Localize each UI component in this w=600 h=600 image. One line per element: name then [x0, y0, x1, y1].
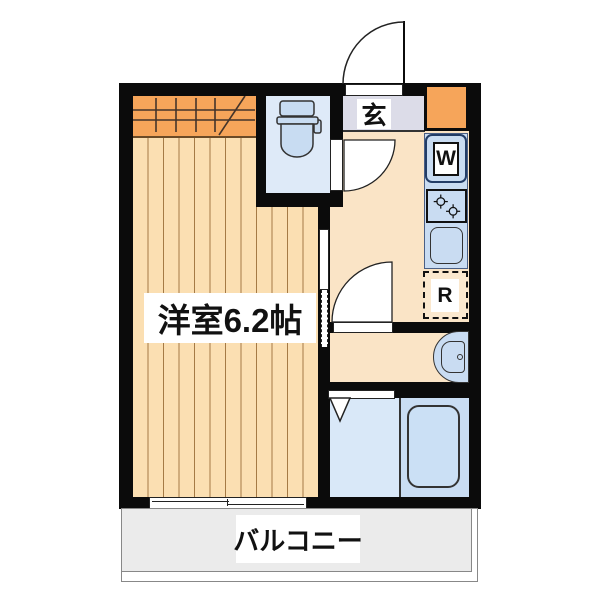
wall-left	[119, 83, 133, 509]
refrigerator-label: R	[431, 279, 459, 312]
entrance-label: 玄	[357, 99, 391, 129]
entrance-door-gap	[345, 84, 403, 96]
bathtub-icon	[407, 405, 460, 488]
wall-right	[469, 83, 481, 509]
toilet-door-arc-icon	[343, 139, 397, 193]
balcony-window-pane-right	[227, 504, 304, 505]
washbasin-drain	[457, 354, 463, 360]
main-room-label: 洋室6.2帖	[144, 293, 316, 343]
shoe-cabinet	[424, 84, 469, 131]
folding-door-icon	[329, 397, 351, 423]
stove-icon	[426, 189, 467, 223]
washing-machine-letter: W	[436, 147, 456, 171]
sliding-door-track	[321, 290, 328, 347]
balcony-label-text: バルコニー	[233, 521, 362, 558]
toilet-door-gap	[330, 139, 343, 191]
closet-hanger-icon	[131, 94, 257, 136]
toilet-room-floor	[266, 96, 330, 193]
balcony-window-pane-left	[152, 501, 229, 502]
refrigerator-letter: R	[437, 284, 452, 308]
washroom-door-arc-icon	[331, 261, 393, 323]
balcony-window-lock	[227, 499, 228, 506]
main-room-label-text: 洋室6.2帖	[158, 294, 303, 342]
toilet-icon	[266, 96, 330, 193]
entrance-label-text: 玄	[361, 96, 386, 132]
washroom-door-gap	[333, 322, 393, 333]
floor-plan: W R	[0, 0, 600, 600]
closet	[131, 94, 257, 138]
bathroom-divider	[399, 398, 401, 497]
sliding-door-leaf	[319, 229, 329, 290]
entrance-door-arc-icon	[342, 21, 405, 85]
balcony-label: バルコニー	[236, 515, 360, 563]
washing-machine-label: W	[433, 142, 459, 176]
sink-icon	[430, 227, 463, 264]
